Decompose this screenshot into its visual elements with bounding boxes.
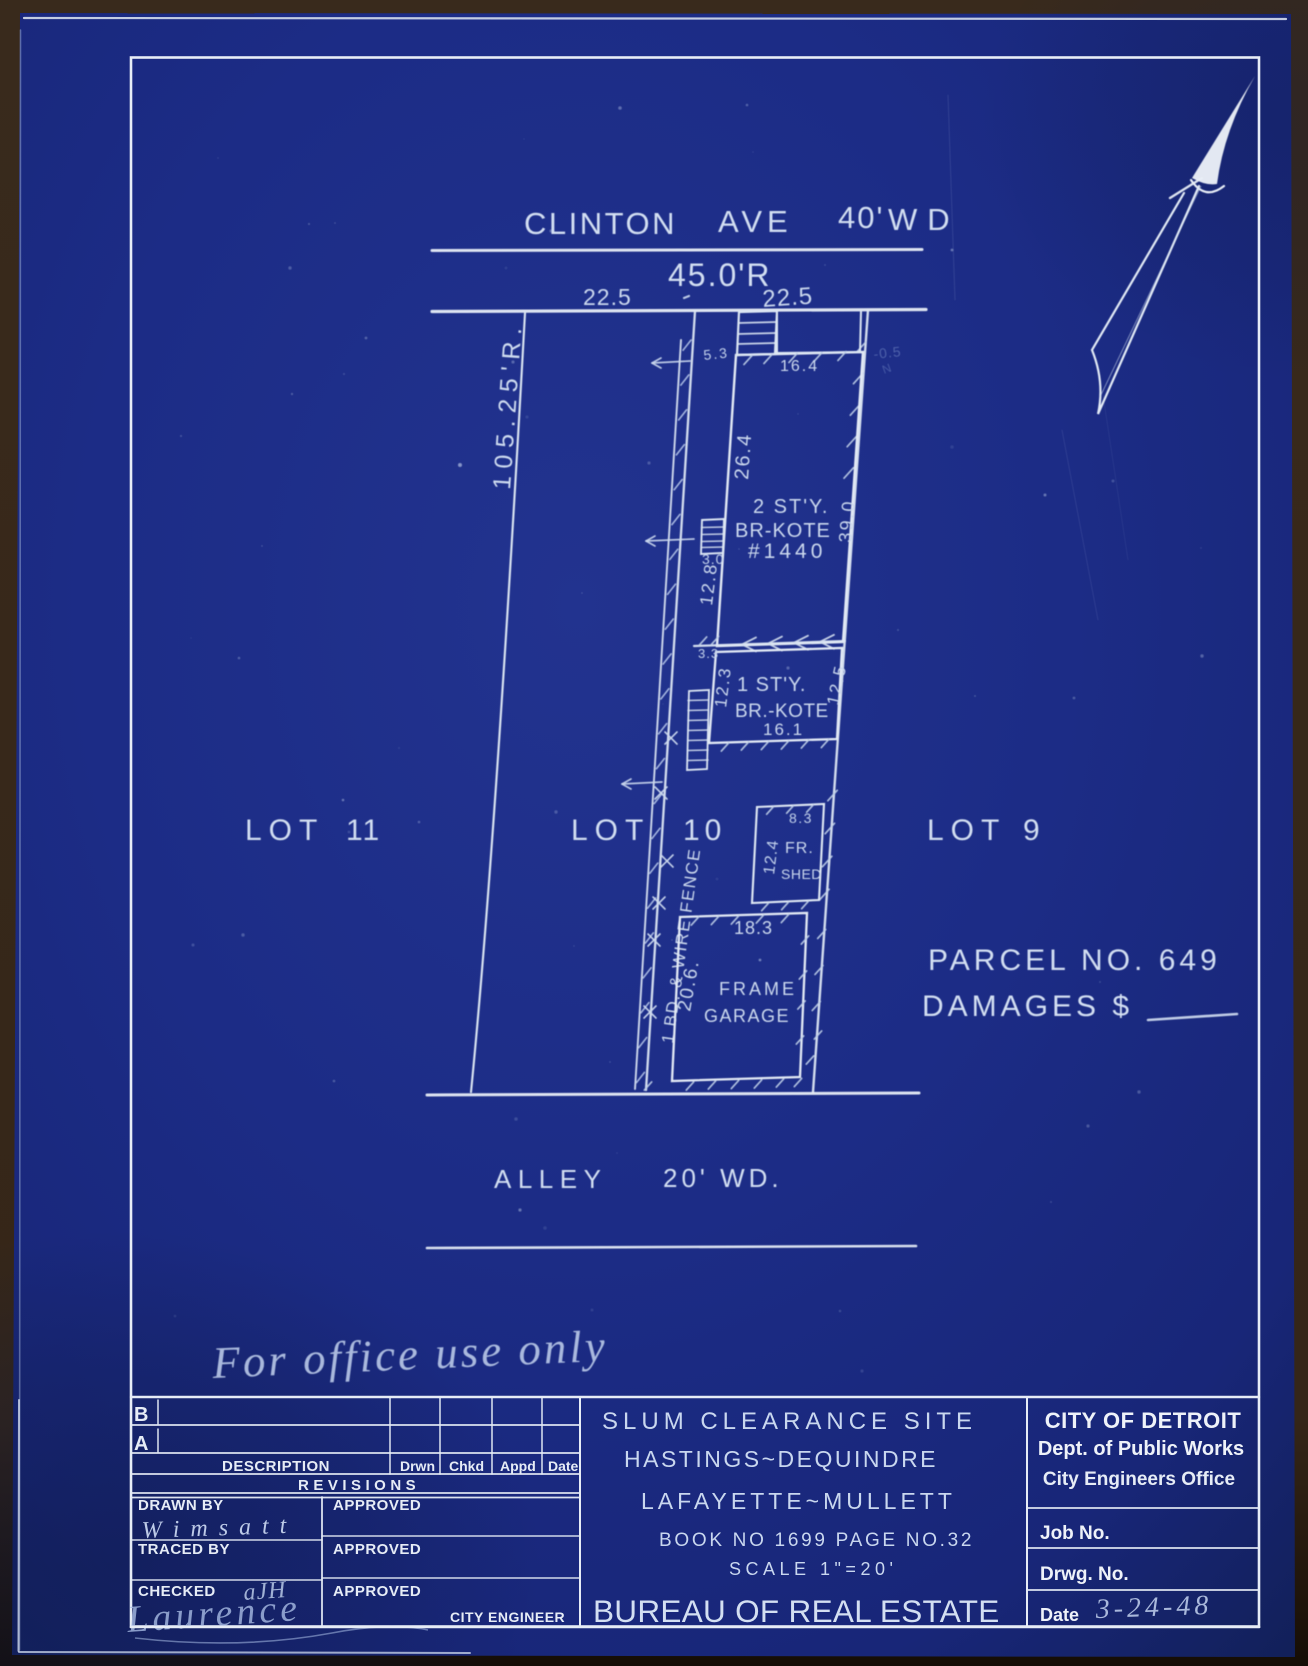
svg-text:CLINTON: CLINTON (524, 206, 677, 241)
svg-text:DESCRIPTION: DESCRIPTION (222, 1458, 330, 1475)
svg-text:16.1: 16.1 (763, 720, 804, 739)
svg-text:#1440: #1440 (748, 540, 826, 563)
svg-text:LOT: LOT (571, 814, 650, 847)
svg-text:PARCEL NO. 649: PARCEL NO. 649 (928, 944, 1221, 977)
svg-text:REVISIONS: REVISIONS (298, 1477, 420, 1494)
svg-text:LAFAYETTE~MULLETT: LAFAYETTE~MULLETT (641, 1488, 956, 1514)
svg-text:45.0'R: 45.0'R (668, 257, 772, 293)
svg-text:Drwn: Drwn (400, 1458, 435, 1474)
svg-text:20' WD.: 20' WD. (663, 1163, 783, 1193)
svg-text:40': 40' (838, 200, 884, 235)
svg-text:GARAGE: GARAGE (704, 1006, 790, 1026)
svg-text:SCALE 1"=20': SCALE 1"=20' (729, 1559, 897, 1579)
svg-text:WD: WD (888, 202, 960, 237)
svg-text:18.3: 18.3 (734, 918, 773, 938)
svg-text:FRAME: FRAME (719, 979, 797, 999)
svg-text:LOT: LOT (927, 814, 1006, 847)
svg-text:APPROVED: APPROVED (333, 1497, 421, 1514)
svg-text:16.4: 16.4 (780, 358, 819, 375)
svg-text:LOT: LOT (245, 814, 324, 847)
svg-text:Date: Date (548, 1458, 579, 1474)
svg-text:-0.5: -0.5 (873, 343, 903, 362)
svg-text:CITY ENGINEER: CITY ENGINEER (450, 1609, 565, 1625)
svg-text:SHED: SHED (781, 866, 822, 882)
svg-text:W i m s a t t: W i m s a t t (141, 1513, 289, 1544)
svg-text:22.5: 22.5 (583, 284, 632, 310)
svg-text:TRACED BY: TRACED BY (138, 1541, 230, 1558)
svg-text:ALLEY: ALLEY (494, 1164, 607, 1194)
svg-text:APPROVED: APPROVED (333, 1541, 421, 1558)
svg-text:BR.-KOTE: BR.-KOTE (735, 701, 829, 722)
svg-text:SLUM CLEARANCE SITE: SLUM CLEARANCE SITE (602, 1408, 977, 1435)
svg-text:City Engineers Office: City Engineers Office (1043, 1469, 1235, 1490)
svg-text:A: A (134, 1433, 148, 1455)
svg-text:Job No.: Job No. (1040, 1523, 1110, 1544)
svg-text:3.3: 3.3 (698, 646, 719, 661)
svg-text:5.3: 5.3 (703, 344, 730, 363)
svg-text:FR.: FR. (785, 840, 814, 857)
svg-text:39.0: 39.0 (835, 499, 859, 544)
svg-text:Appd: Appd (500, 1458, 536, 1474)
svg-text:26.4: 26.4 (731, 432, 756, 480)
svg-text:B: B (134, 1404, 148, 1426)
svg-text:Date: Date (1040, 1605, 1079, 1625)
svg-text:CITY OF DETROIT: CITY OF DETROIT (1045, 1408, 1242, 1433)
svg-text:3-24-48: 3-24-48 (1094, 1590, 1213, 1625)
svg-text:1 ST'Y.: 1 ST'Y. (737, 674, 806, 696)
svg-text:Drwg. No.: Drwg. No. (1040, 1564, 1129, 1585)
svg-text:10: 10 (683, 814, 726, 847)
svg-text:BOOK NO 1699 PAGE NO.32: BOOK NO 1699 PAGE NO.32 (659, 1530, 974, 1551)
svg-text:AVE: AVE (718, 204, 793, 239)
svg-text:8.3: 8.3 (789, 810, 813, 826)
svg-text:Dept. of Public Works: Dept. of Public Works (1038, 1438, 1244, 1460)
svg-text:HASTINGS~DEQUINDRE: HASTINGS~DEQUINDRE (624, 1446, 938, 1472)
svg-text:BUREAU OF REAL ESTATE: BUREAU OF REAL ESTATE (593, 1593, 1000, 1629)
svg-text:2 ST'Y.: 2 ST'Y. (753, 496, 829, 518)
svg-text:DRAWN BY: DRAWN BY (138, 1497, 224, 1514)
svg-text:9: 9 (1023, 814, 1042, 847)
svg-text:Chkd: Chkd (449, 1458, 484, 1474)
svg-text:APPROVED: APPROVED (333, 1583, 421, 1600)
svg-text:DAMAGES $: DAMAGES $ (922, 990, 1133, 1023)
svg-text:11: 11 (346, 814, 381, 847)
svg-text:BR-KOTE: BR-KOTE (735, 520, 831, 542)
